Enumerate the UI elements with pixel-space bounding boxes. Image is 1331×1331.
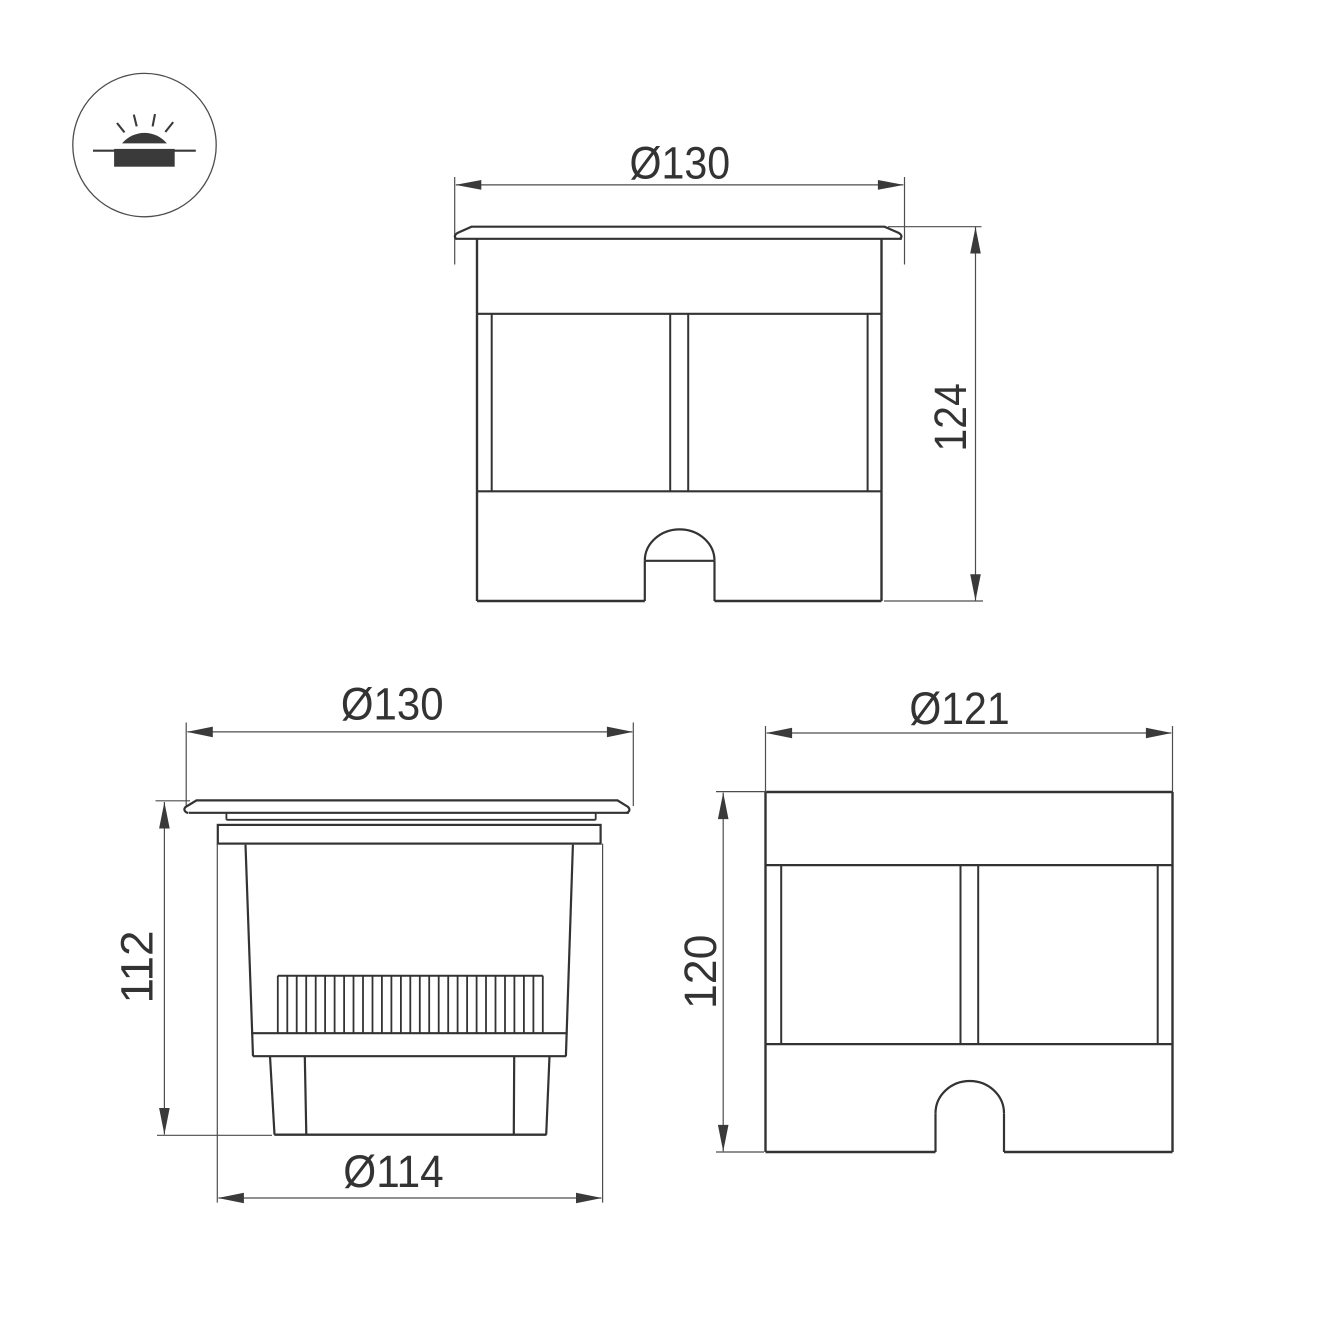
- svg-text:Ø121: Ø121: [909, 683, 1009, 734]
- svg-text:Ø114: Ø114: [343, 1146, 443, 1197]
- svg-text:Ø130: Ø130: [341, 679, 444, 730]
- svg-text:120: 120: [675, 935, 726, 1009]
- svg-text:Ø130: Ø130: [629, 137, 730, 188]
- svg-text:124: 124: [925, 383, 976, 452]
- svg-text:112: 112: [112, 930, 163, 1003]
